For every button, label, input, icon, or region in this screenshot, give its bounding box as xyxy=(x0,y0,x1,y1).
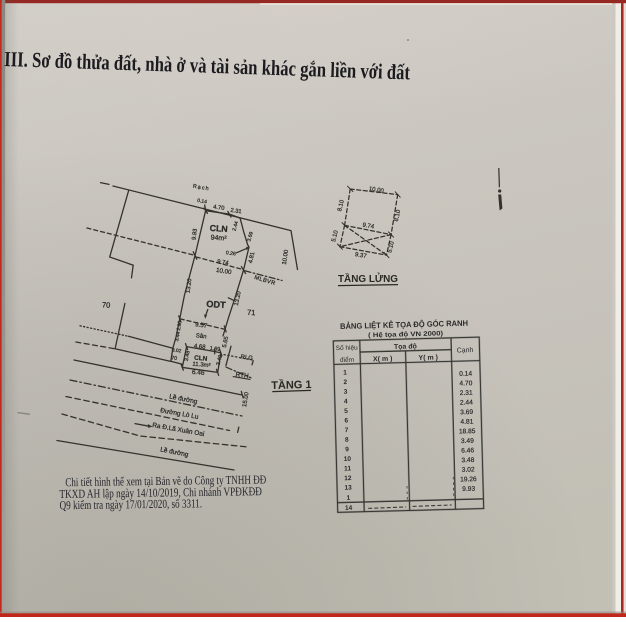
svg-text:4: 4 xyxy=(344,398,348,405)
svg-text:6.46: 6.46 xyxy=(192,369,206,377)
svg-text:3.02: 3.02 xyxy=(462,466,475,473)
svg-text:TẦNG LỬNG: TẦNG LỬNG xyxy=(338,272,398,285)
svg-text:70: 70 xyxy=(171,355,178,362)
svg-text:Cạnh: Cạnh xyxy=(457,347,474,354)
svg-text:3.48: 3.48 xyxy=(461,457,474,464)
svg-text:9.93: 9.93 xyxy=(462,486,475,493)
svg-text:5: 5 xyxy=(344,408,348,415)
svg-text:8: 8 xyxy=(345,437,349,444)
svg-text:ODT: ODT xyxy=(206,299,226,310)
svg-text:4.81: 4.81 xyxy=(460,418,473,425)
svg-text:1: 1 xyxy=(343,369,347,376)
svg-text:Q9 kiểm tra ngày 17/01/2020, s: Q9 kiểm tra ngày 17/01/2020, số 3311. xyxy=(59,496,202,512)
svg-text:18.85: 18.85 xyxy=(459,428,476,435)
svg-text:14: 14 xyxy=(345,505,353,512)
svg-text:6.46: 6.46 xyxy=(461,447,474,454)
svg-text:3.49: 3.49 xyxy=(461,438,474,445)
svg-text:11: 11 xyxy=(344,465,351,472)
svg-text:19.26: 19.26 xyxy=(460,476,477,483)
svg-text:X( m ): X( m ) xyxy=(373,356,393,364)
svg-text:Sân: Sân xyxy=(195,333,206,340)
svg-text:CLN: CLN xyxy=(209,223,228,234)
svg-text:94m²: 94m² xyxy=(210,234,227,242)
svg-text:71: 71 xyxy=(247,308,256,317)
svg-text:Y( m ): Y( m ) xyxy=(418,354,438,362)
svg-text:13: 13 xyxy=(344,485,352,492)
svg-text:3: 3 xyxy=(344,389,348,396)
svg-text:6: 6 xyxy=(344,417,348,424)
svg-text:4.70: 4.70 xyxy=(459,380,472,387)
svg-text:1: 1 xyxy=(346,495,350,502)
svg-text:12: 12 xyxy=(344,475,352,482)
svg-text:0.14: 0.14 xyxy=(459,370,472,377)
svg-text:2: 2 xyxy=(343,379,347,386)
svg-text:2.44: 2.44 xyxy=(460,399,473,406)
svg-text:10: 10 xyxy=(344,456,352,463)
svg-text:7: 7 xyxy=(345,427,349,434)
svg-text:9: 9 xyxy=(345,446,349,453)
svg-text:3.69: 3.69 xyxy=(460,409,473,416)
svg-text:TẦNG 1: TẦNG 1 xyxy=(271,378,312,392)
svg-text:Tọa độ: Tọa độ xyxy=(394,343,417,351)
svg-text:điểm: điểm xyxy=(340,356,354,364)
svg-text:70: 70 xyxy=(102,300,111,309)
svg-text:4.68: 4.68 xyxy=(193,344,206,351)
svg-text:2.31: 2.31 xyxy=(460,390,473,397)
svg-text:1.69: 1.69 xyxy=(209,346,220,353)
